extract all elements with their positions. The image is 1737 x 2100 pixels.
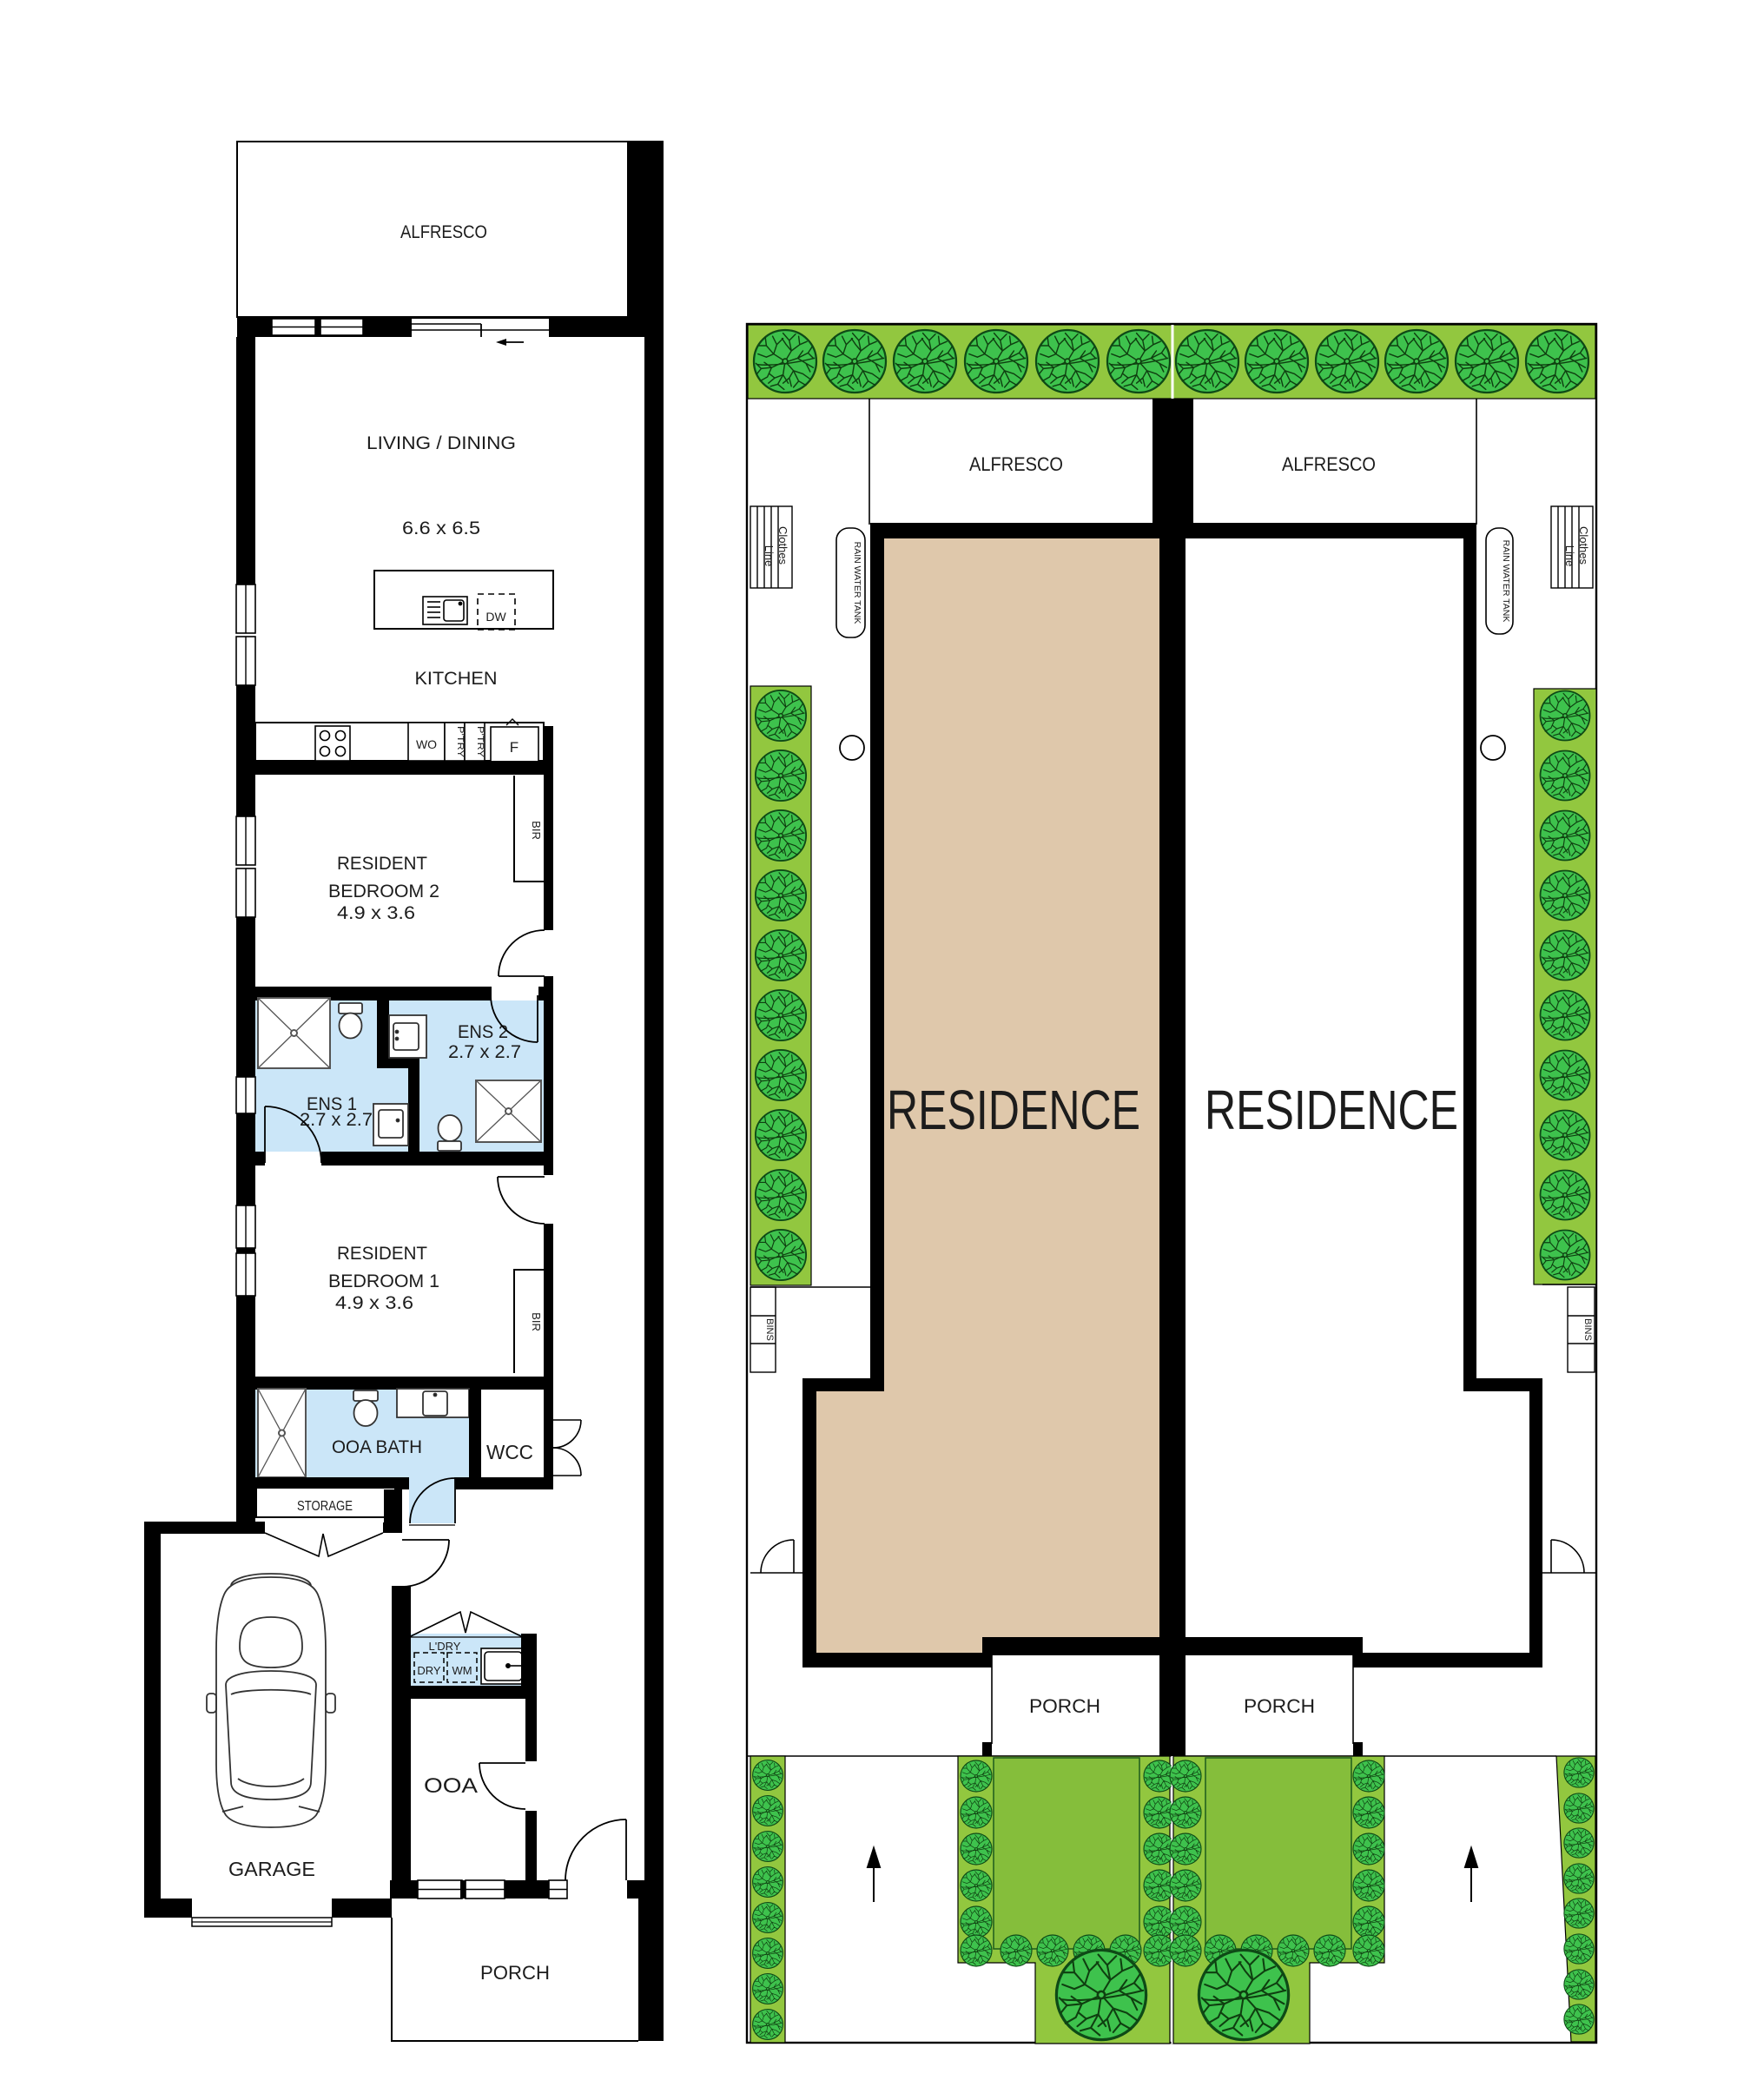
svg-text:2.7 x 2.7: 2.7 x 2.7 bbox=[300, 1110, 373, 1130]
svg-text:RESIDENT: RESIDENT bbox=[337, 1244, 427, 1264]
svg-text:BEDROOM 1: BEDROOM 1 bbox=[328, 1271, 439, 1291]
svg-text:P'TRY: P'TRY bbox=[475, 726, 485, 757]
svg-text:F: F bbox=[510, 739, 518, 756]
svg-text:BIR: BIR bbox=[530, 821, 543, 840]
svg-text:LIVING / DINING: LIVING / DINING bbox=[367, 433, 516, 453]
svg-text:WCC: WCC bbox=[486, 1441, 533, 1463]
svg-text:2.7 x 2.7: 2.7 x 2.7 bbox=[448, 1042, 521, 1062]
svg-text:PORCH: PORCH bbox=[1244, 1695, 1315, 1717]
svg-text:Clothes: Clothes bbox=[1577, 526, 1590, 565]
svg-text:RESIDENCE: RESIDENCE bbox=[1205, 1079, 1458, 1141]
svg-text:RAIN WATER TANK: RAIN WATER TANK bbox=[852, 542, 862, 624]
svg-text:RESIDENCE: RESIDENCE bbox=[887, 1079, 1140, 1141]
svg-text:WM: WM bbox=[452, 1664, 472, 1677]
svg-text:4.9 x 3.6: 4.9 x 3.6 bbox=[337, 903, 415, 923]
svg-text:L'DRY: L'DRY bbox=[429, 1640, 461, 1653]
svg-text:OOA: OOA bbox=[424, 1774, 478, 1798]
svg-text:GARAGE: GARAGE bbox=[228, 1858, 315, 1880]
svg-text:Clothes: Clothes bbox=[776, 526, 789, 565]
svg-text:Line: Line bbox=[763, 545, 776, 567]
svg-text:BIR: BIR bbox=[530, 1312, 543, 1331]
svg-text:RAIN WATER TANK: RAIN WATER TANK bbox=[1501, 540, 1511, 623]
svg-text:OOA BATH: OOA BATH bbox=[332, 1437, 422, 1457]
svg-text:PORCH: PORCH bbox=[480, 1962, 550, 1984]
svg-text:6.6 x 6.5: 6.6 x 6.5 bbox=[402, 518, 480, 538]
svg-text:BINS: BINS bbox=[1582, 1318, 1593, 1341]
svg-text:KITCHEN: KITCHEN bbox=[415, 669, 498, 689]
svg-text:PORCH: PORCH bbox=[1029, 1695, 1100, 1717]
svg-text:RESIDENT: RESIDENT bbox=[337, 854, 427, 874]
svg-text:ALFRESCO: ALFRESCO bbox=[400, 222, 487, 242]
svg-text:STORAGE: STORAGE bbox=[297, 1499, 353, 1514]
svg-text:DW: DW bbox=[485, 610, 506, 624]
svg-text:ALFRESCO: ALFRESCO bbox=[969, 453, 1063, 475]
svg-text:WO: WO bbox=[416, 737, 437, 751]
svg-text:BINS: BINS bbox=[764, 1318, 775, 1341]
svg-text:4.9 x 3.6: 4.9 x 3.6 bbox=[335, 1293, 413, 1313]
svg-text:BEDROOM 2: BEDROOM 2 bbox=[328, 882, 439, 901]
svg-text:Line: Line bbox=[1563, 545, 1576, 567]
svg-text:ALFRESCO: ALFRESCO bbox=[1282, 453, 1376, 475]
svg-text:DRY: DRY bbox=[417, 1664, 441, 1677]
